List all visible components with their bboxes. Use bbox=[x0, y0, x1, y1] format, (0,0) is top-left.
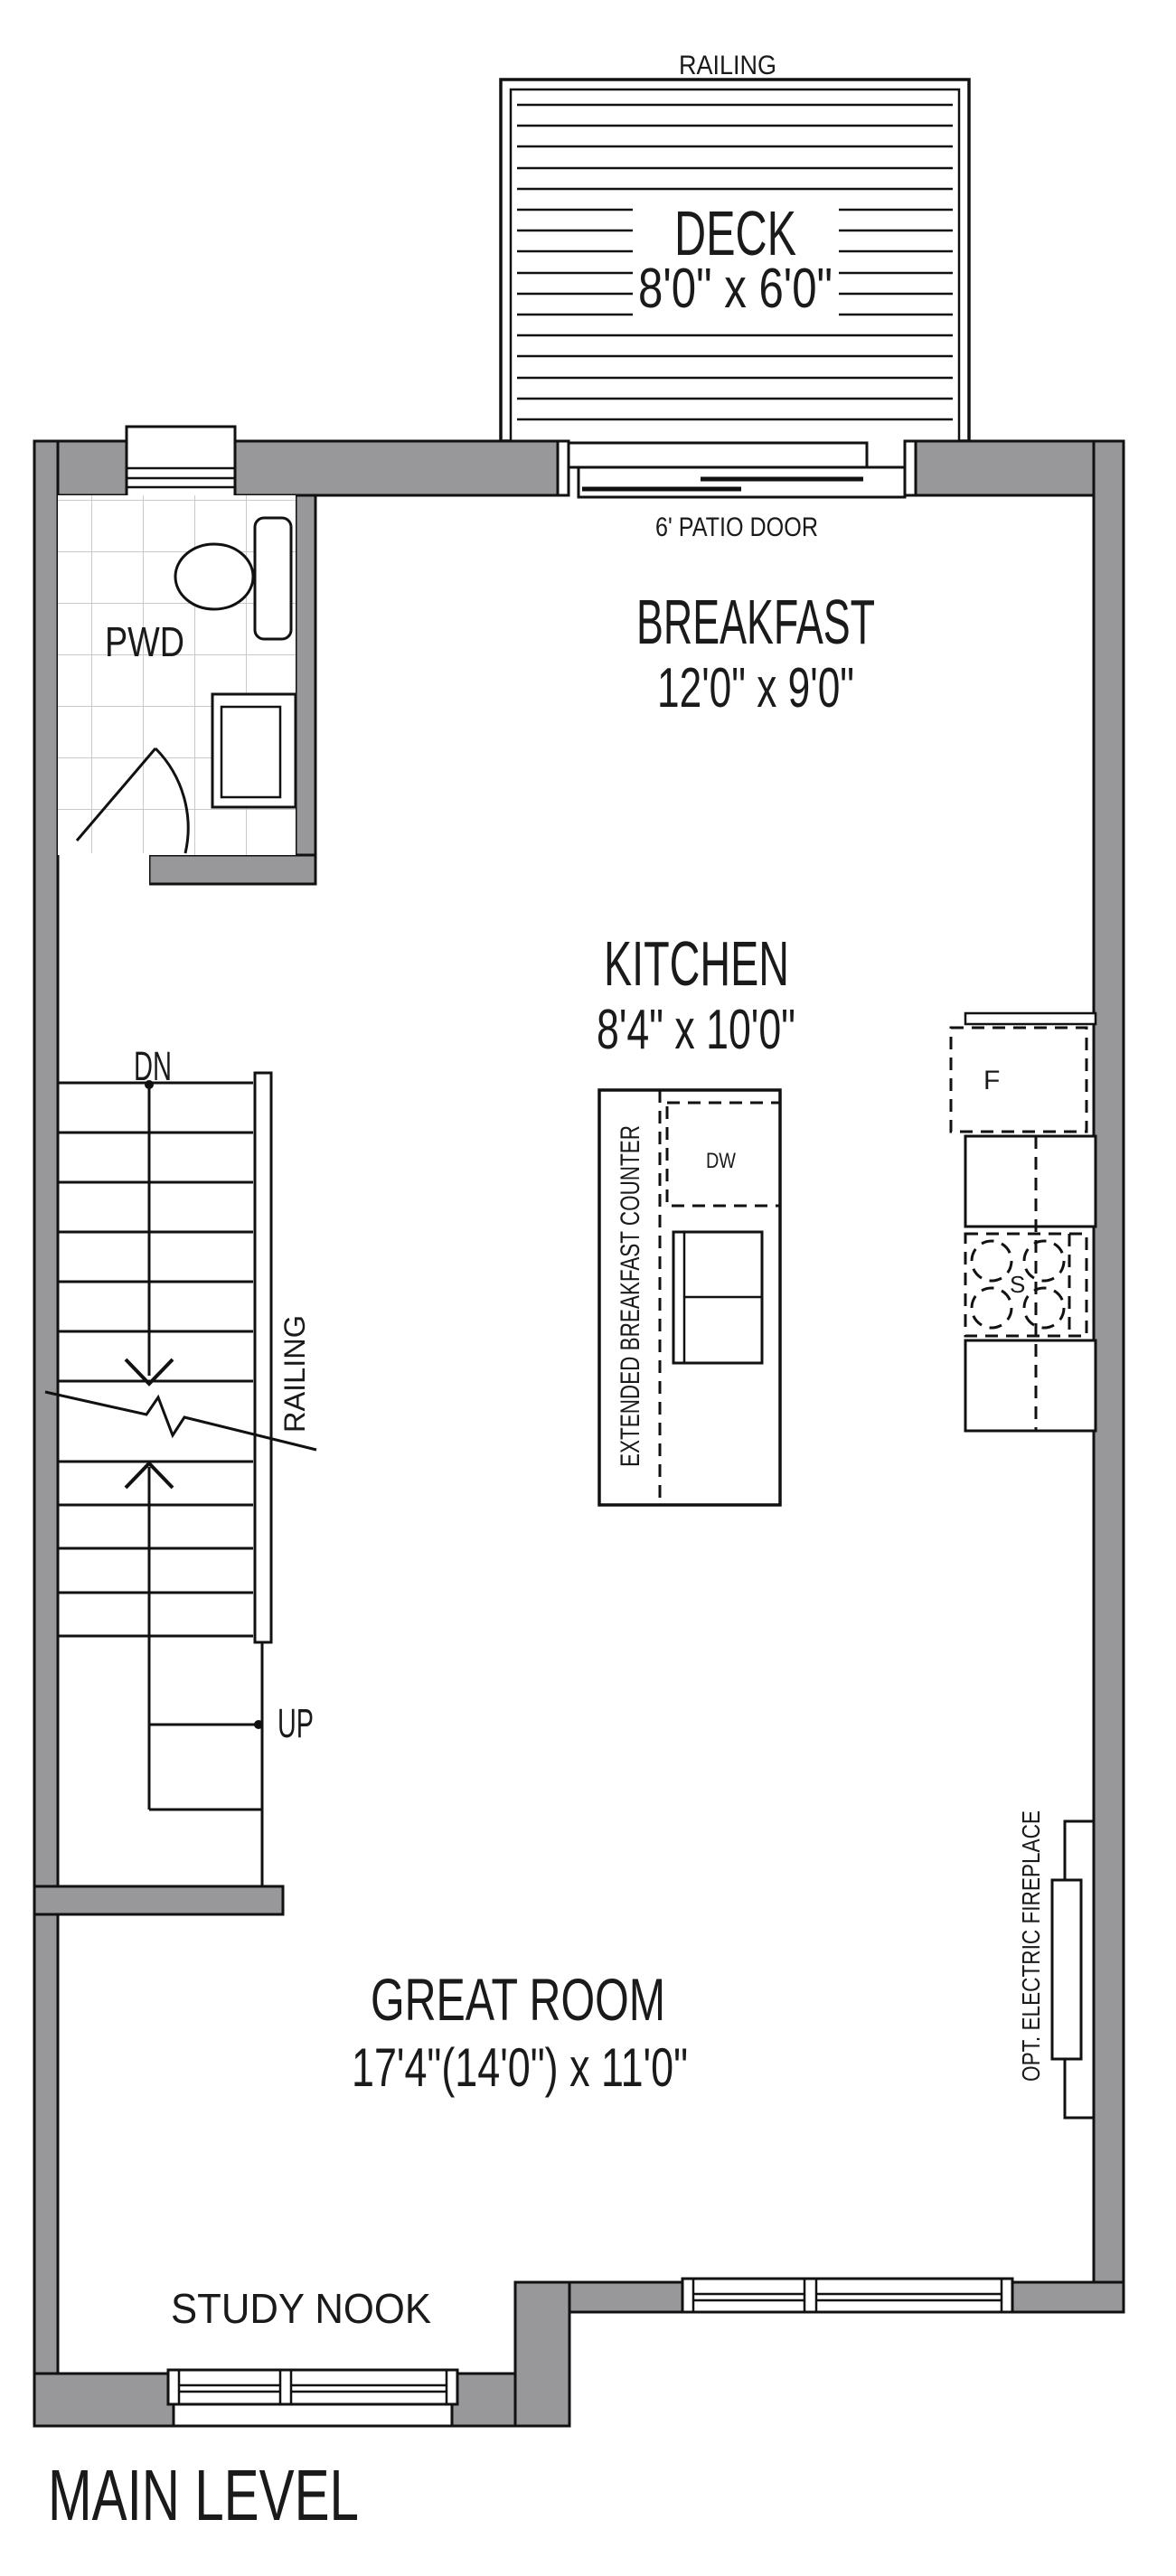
fireplace-label: OPT. ELECTRIC FIREPLACE bbox=[1017, 1810, 1045, 2082]
patio-door-panel-back bbox=[569, 443, 867, 467]
pwd-door-opening bbox=[60, 853, 149, 886]
wall-right bbox=[1094, 441, 1124, 2312]
great-room-dims: 17'4"(14'0") x 11'0" bbox=[352, 2037, 688, 2098]
dishwasher-label: DW bbox=[706, 1149, 736, 1173]
burner-icon bbox=[972, 1241, 1011, 1281]
wall-pwd-right bbox=[296, 495, 315, 884]
wall-stair-stub bbox=[34, 1886, 283, 1914]
burner-icon bbox=[1024, 1288, 1064, 1328]
study-nook-label: STUDY NOOK bbox=[171, 2285, 431, 2332]
stair-down-label: DN bbox=[134, 1043, 172, 1089]
island-label: EXTENDED BREAKFAST COUNTER bbox=[616, 1125, 645, 1467]
stair-landing-lines bbox=[149, 1642, 262, 1886]
wall-left bbox=[34, 441, 58, 2426]
patio-door-panel-front bbox=[579, 467, 905, 497]
stair-up-label: UP bbox=[278, 1700, 314, 1746]
fridge-label: F bbox=[983, 1066, 1000, 1095]
stair-break-line bbox=[45, 1392, 316, 1450]
wall-pwd-bottom bbox=[149, 855, 315, 884]
island-sink-icon bbox=[673, 1232, 762, 1363]
stove-label: S bbox=[1010, 1271, 1025, 1298]
pwd-window bbox=[127, 427, 235, 499]
pwd-room bbox=[58, 495, 296, 886]
patio-door-label: 6' PATIO DOOR bbox=[655, 512, 818, 542]
toilet-tank-icon bbox=[255, 518, 291, 639]
patio-door bbox=[558, 439, 916, 497]
counter-section-upper bbox=[965, 1136, 1096, 1227]
pwd-label: PWD bbox=[105, 618, 184, 665]
stair-treads-lower bbox=[58, 1462, 253, 1636]
study-nook-window bbox=[168, 2370, 457, 2426]
burner-icon bbox=[972, 1288, 1011, 1328]
kitchen-counter-run bbox=[951, 1013, 1096, 1431]
deck-railing-label: RAILING bbox=[679, 51, 776, 80]
stair-railing-label: RAILING bbox=[278, 1315, 311, 1433]
toilet-bowl-icon bbox=[175, 544, 253, 609]
pwd-sink-basin-icon bbox=[221, 707, 280, 797]
deck: DECK 8'0" x 6'0" bbox=[501, 80, 969, 441]
kitchen-label: KITCHEN bbox=[604, 928, 789, 999]
patio-door-jamb-right bbox=[905, 441, 916, 495]
stair-treads-upper bbox=[58, 1083, 253, 1381]
counter-section-lower bbox=[965, 1340, 1096, 1431]
stove-icon bbox=[965, 1234, 1087, 1336]
breakfast-label: BREAKFAST bbox=[636, 587, 875, 657]
page-title: MAIN LEVEL bbox=[48, 2455, 359, 2535]
wall-step-study-nook bbox=[515, 2282, 569, 2426]
deck-dims: 8'0" x 6'0" bbox=[638, 258, 833, 320]
staircase bbox=[45, 1073, 316, 1886]
patio-door-jamb-left bbox=[558, 441, 569, 495]
study-nook-window-sill bbox=[174, 2404, 452, 2426]
great-room-windows bbox=[682, 2279, 1012, 2312]
kitchen-dims: 8'4" x 10'0" bbox=[597, 999, 795, 1061]
fireplace-icon bbox=[1052, 1821, 1094, 2118]
great-room-label: GREAT ROOM bbox=[371, 1966, 665, 2033]
breakfast-dims: 12'0" x 9'0" bbox=[657, 657, 854, 719]
stair-railing bbox=[255, 1073, 271, 1642]
counter-edge-strip bbox=[965, 1013, 1096, 1024]
fridge-icon bbox=[951, 1028, 1087, 1132]
burner-icon bbox=[1024, 1241, 1064, 1281]
floor-plan: DECK 8'0" x 6'0" RAILING 6' PATIO DOOR bbox=[0, 0, 1176, 2571]
